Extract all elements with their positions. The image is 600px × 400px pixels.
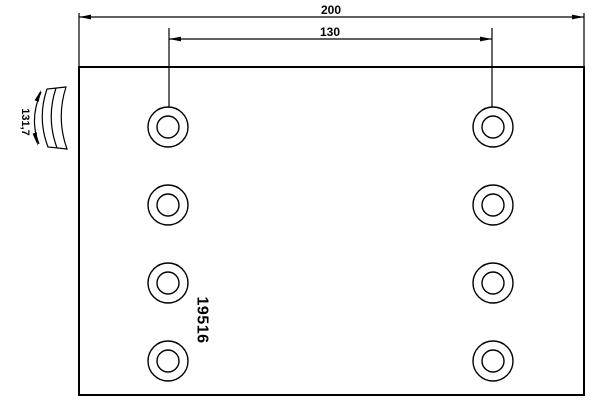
arrowhead-left (169, 37, 181, 42)
technical-drawing-page: 200 130 131,7 19516 (0, 0, 600, 400)
rivet-hole-outer (148, 185, 188, 225)
rivet-hole-outer (148, 107, 188, 147)
rivet-hole-outer (473, 107, 513, 147)
rivet-hole-outer (473, 263, 513, 303)
rivet-hole-inner (482, 350, 504, 372)
arc-arrowhead-bottom (33, 132, 38, 146)
dimension-label-200: 200 (321, 3, 341, 17)
rivet-hole-outer (473, 341, 513, 381)
rivet-hole-inner (482, 116, 504, 138)
arrowhead-left (79, 15, 91, 20)
brake-lining-drawing: 200 130 131,7 19516 (0, 0, 600, 400)
dimension-label-130: 130 (320, 25, 340, 39)
rivet-hole-inner (482, 194, 504, 216)
rivet-hole-outer (148, 263, 188, 303)
arrowhead-right (480, 37, 492, 42)
rivet-hole-inner (157, 116, 179, 138)
rivet-hole-inner (157, 350, 179, 372)
arc-length-label: 131,7 (19, 108, 31, 136)
rivet-hole-inner (157, 194, 179, 216)
lining-cross-section-middle-line (51, 88, 57, 148)
curved-profile-symbol: 131,7 (19, 87, 67, 149)
arrowhead-right (572, 15, 584, 20)
arc-arrowhead-top (35, 90, 41, 102)
rivet-hole-outer (148, 341, 188, 381)
part-number-label: 19516 (193, 297, 210, 344)
rivet-hole-outer (473, 185, 513, 225)
rivet-hole-inner (157, 272, 179, 294)
rivet-hole-inner (482, 272, 504, 294)
